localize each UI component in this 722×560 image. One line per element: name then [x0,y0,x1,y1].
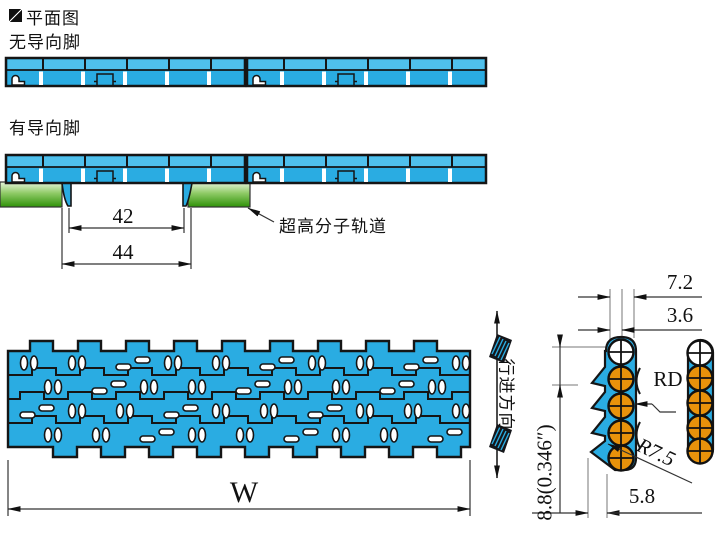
label-travel-direction: 行进方向 [496,349,521,441]
dim-44: 44 [97,240,149,265]
section-marker [9,9,22,22]
engineering-drawing: 平面图 无导向脚 有导向脚 42 44 超高分子轨道 W 行进方向 7.2 3.… [0,0,722,560]
label-uhmw-track: 超高分子轨道 [279,212,387,237]
dim-42: 42 [97,204,149,229]
label-with-guide-feet: 有导向脚 [9,114,81,139]
dim-5-8: 5.8 [607,484,677,509]
dim-3-6: 3.6 [645,303,715,328]
dim-width-w: W [218,476,270,510]
side-profile-no-guide [6,58,486,86]
dim-lines-guide-feet [62,208,274,269]
dim-8-8-height: 8.8(0.346″) [533,383,558,560]
guide-foot-left [62,183,71,206]
dim-7-2: 7.2 [645,270,715,295]
label-rod-diameter: RD [646,367,690,392]
uhmw-track-block-left [0,182,62,207]
side-profile-with-guide [0,155,486,207]
label-no-guide-feet: 无导向脚 [9,28,81,53]
track-leader-line [248,208,274,222]
drawing-canvas [0,0,722,560]
uhmw-track-block-right [188,182,250,207]
page-title: 平面图 [26,4,80,29]
plan-view [8,341,470,457]
